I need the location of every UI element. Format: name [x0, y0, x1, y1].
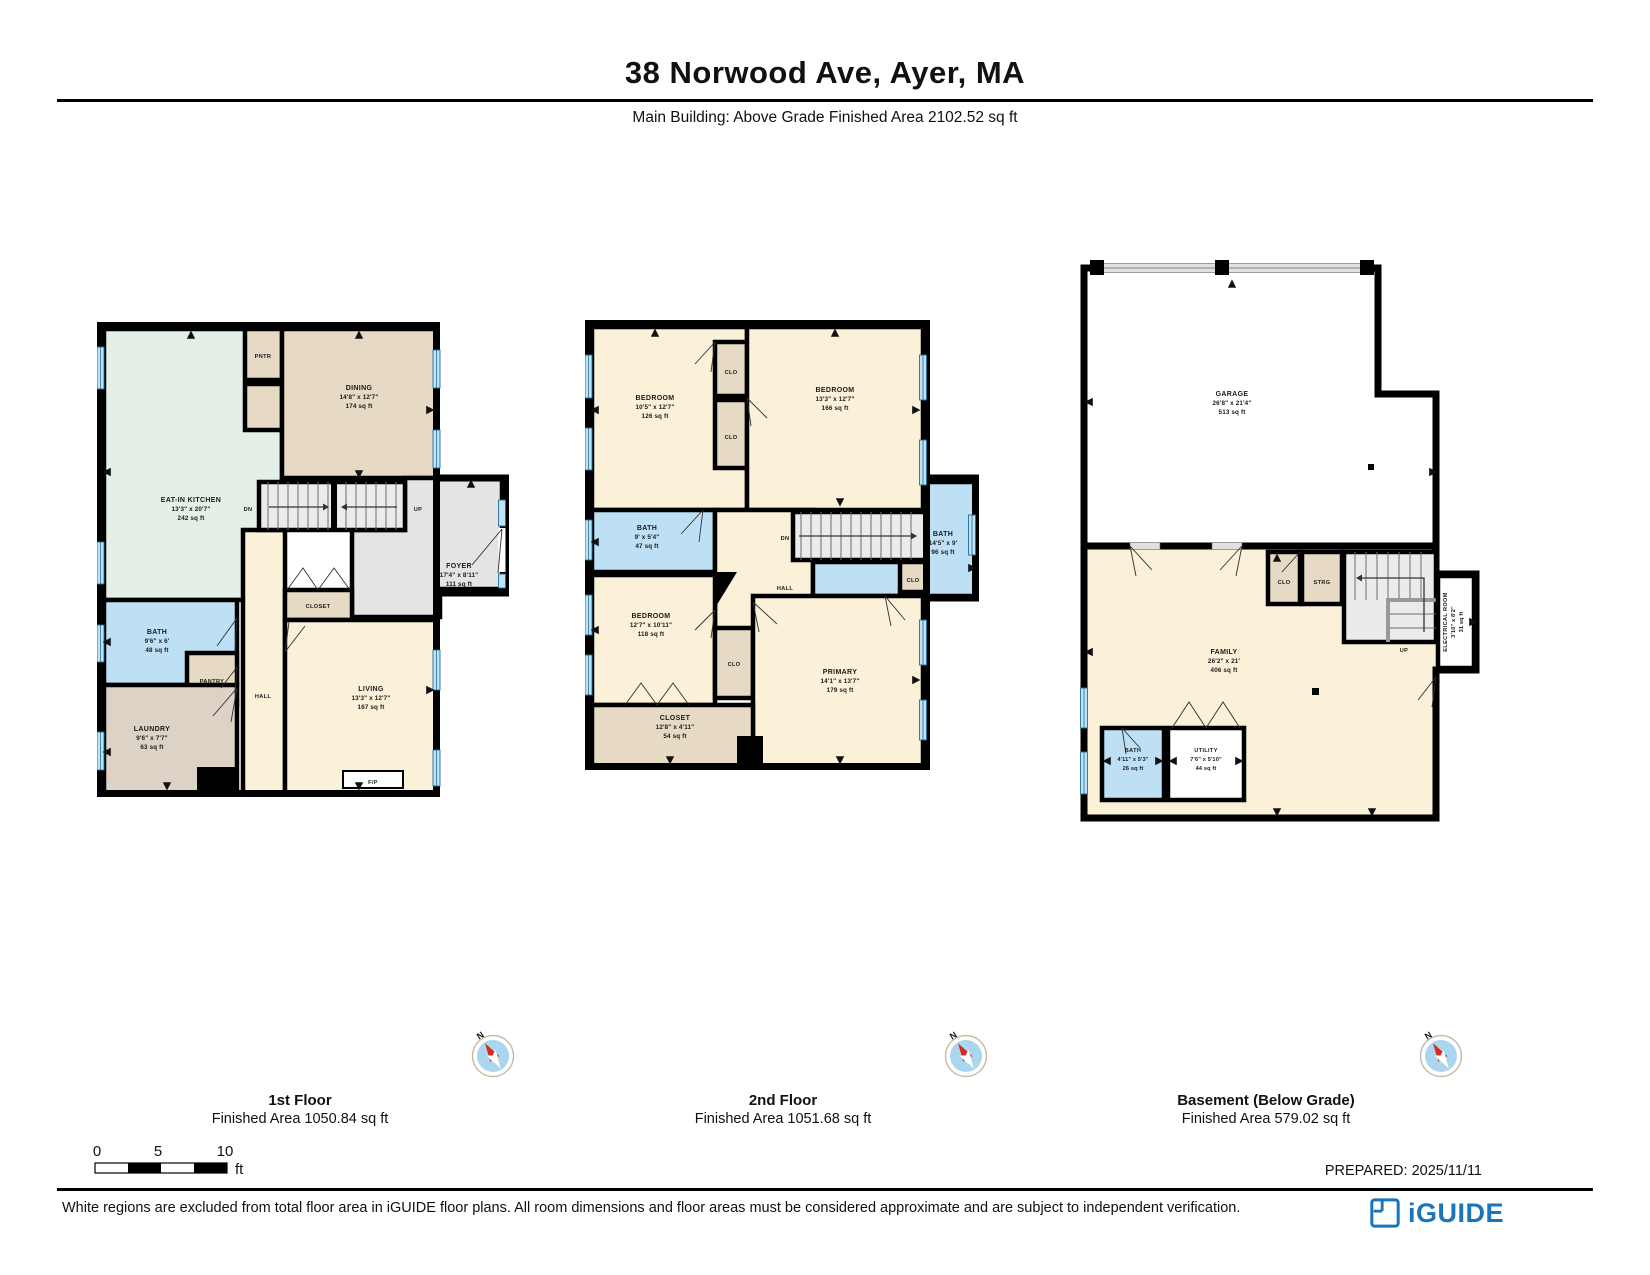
room-label: BATH [637, 525, 657, 532]
room-label: CLO [725, 370, 738, 376]
room-area: 179 sq ft [827, 687, 855, 694]
garage-door-post [1215, 260, 1229, 275]
room-area: 96 sq ft [931, 549, 955, 556]
room-label: BEDROOM [631, 613, 670, 620]
floor-finished-area: Finished Area 1050.84 sq ft [110, 1111, 490, 1127]
room-dims: 10'5" x 12'7" [636, 404, 675, 411]
room-dims: 12'7" x 10'11" [630, 622, 672, 629]
bath-room [1102, 728, 1164, 800]
room-dims: 7'6" x 5'10" [1190, 757, 1222, 763]
floor-name: 2nd Floor [593, 1092, 973, 1109]
stairs-down-label: DN [781, 536, 790, 542]
room-dims: 9'6" x 7'7" [136, 735, 168, 742]
room-area: 166 sq ft [822, 405, 850, 412]
room-label: GARAGE [1216, 391, 1249, 398]
room-dims: 12'8" x 4'11" [656, 724, 695, 731]
room-dims: 4'11" x 5'3" [1117, 757, 1148, 763]
room-label: EAT-IN KITCHEN [161, 497, 221, 504]
wall-notch [737, 736, 763, 766]
room-area: 54 sq ft [663, 733, 687, 740]
iguide-logo-text: iGUIDE [1408, 1198, 1504, 1229]
room-label: LAUNDRY [134, 726, 170, 733]
room-area: 44 sq ft [1196, 766, 1217, 772]
room-area: 118 sq ft [638, 631, 665, 638]
hall-area [243, 530, 285, 793]
room-label: CLOSET [660, 715, 691, 722]
stairs-up-label: UP [1400, 648, 1408, 654]
caption-2nd-floor: 2nd Floor Finished Area 1051.68 sq ft [593, 1092, 973, 1127]
room-area: 126 sq ft [642, 413, 670, 420]
room-label: CLO [907, 578, 920, 584]
room-label: BEDROOM [815, 387, 854, 394]
room-area: 47 sq ft [635, 543, 659, 550]
page-title: 38 Norwood Ave, Ayer, MA [0, 55, 1650, 91]
iguide-logo: iGUIDE [1369, 1197, 1504, 1229]
caption-1st-floor: 1st Floor Finished Area 1050.84 sq ft [110, 1092, 490, 1127]
svg-text:31 sq ft: 31 sq ft [1459, 612, 1465, 633]
room-dims: 13'3" x 20'7" [172, 506, 211, 513]
room-label: PANTRY [200, 679, 224, 685]
garage-area [1084, 268, 1436, 546]
room-dims: 17'4" x 8'11" [440, 572, 479, 579]
room-area: 406 sq ft [1211, 667, 1239, 674]
room-dims: 26'2" x 21' [1208, 658, 1240, 665]
basement-floor-plan: GARAGE 26'8" x 21'4" 513 sq ft FAMILY 26… [1072, 252, 1492, 832]
first-floor-plan: EAT-IN KITCHEN 13'3" x 20'7" 242 sq ft P… [97, 322, 512, 797]
caption-basement: Basement (Below Grade) Finished Area 579… [1076, 1092, 1456, 1127]
scale-unit: ft [235, 1161, 244, 1178]
floor-name: 1st Floor [110, 1092, 490, 1109]
room-label: PRIMARY [823, 669, 857, 676]
room-dims: 9' x 5'4" [635, 534, 660, 541]
clo-stairs [900, 562, 927, 592]
page-subtitle: Main Building: Above Grade Finished Area… [0, 109, 1650, 127]
fireplace-label: F/P [368, 780, 378, 786]
room-label: FAMILY [1210, 649, 1237, 656]
room-label: STRG [1314, 580, 1331, 586]
room-dims: 14'5" x 9' [929, 540, 958, 547]
floor-finished-area: Finished Area 1051.68 sq ft [593, 1111, 973, 1127]
room-label: CLOSET [306, 604, 331, 610]
header-divider [57, 99, 1593, 102]
svg-text:ELECTRICAL ROOM: ELECTRICAL ROOM [1443, 592, 1449, 652]
iguide-logo-icon [1369, 1197, 1401, 1229]
room-dims: 13'3" x 12'7" [816, 396, 855, 403]
room-area: 48 sq ft [145, 647, 169, 654]
room-label: LIVING [358, 686, 384, 693]
garage-door-post [1360, 260, 1374, 275]
bath-west [592, 510, 715, 572]
room-dims: 9'6" x 6' [145, 638, 170, 645]
room-label: HALL [255, 694, 272, 700]
scale-tick-10: 10 [217, 1143, 234, 1160]
room-dims: 13'3" x 12'7" [352, 695, 391, 702]
room-label: PNTR [255, 354, 272, 360]
room-area: 174 sq ft [346, 403, 374, 410]
garage-marker-dot [1368, 464, 1374, 470]
chimney-block [197, 767, 237, 793]
compass-1st-floor: N [465, 1028, 521, 1084]
family-marker-dot [1312, 688, 1319, 695]
prepared-date: PREPARED: 2025/11/11 [1325, 1163, 1482, 1179]
clo-room [1268, 552, 1300, 604]
stairs-up-label: UP [414, 507, 422, 513]
room-area: 167 sq ft [358, 704, 386, 711]
room-dims: 14'8" x 12'7" [340, 394, 379, 401]
second-floor-plan: BEDROOM 10'5" x 12'7" 126 sq ft CLO CLO … [585, 320, 985, 770]
room-area: 513 sq ft [1219, 409, 1247, 416]
scale-tick-5: 5 [154, 1143, 162, 1160]
strg-room [1302, 552, 1342, 604]
compass-basement: N [1413, 1028, 1469, 1084]
room-area: 111 sq ft [446, 581, 473, 588]
pntr-room-2 [245, 384, 282, 430]
room-label: CLO [725, 435, 738, 441]
bedroom-sw [592, 575, 715, 705]
garage-door-post [1090, 260, 1104, 275]
room-label: HALL [777, 586, 794, 592]
clo-lower [715, 400, 747, 468]
footer-divider [57, 1188, 1593, 1191]
room-dims: 26'8" x 21'4" [1213, 400, 1252, 407]
floorplan-page: 38 Norwood Ave, Ayer, MA Main Building: … [0, 0, 1650, 1275]
room-label: BATH [147, 629, 167, 636]
room-area: 63 sq ft [140, 744, 164, 751]
room-label: DINING [346, 385, 373, 392]
room-label: CLO [728, 662, 741, 668]
floor-finished-area: Finished Area 579.02 sq ft [1076, 1111, 1456, 1127]
room-area: 242 sq ft [178, 515, 206, 522]
stairs-down-label: DN [244, 507, 253, 513]
room-label: FOYER [446, 563, 472, 570]
clo-upper [715, 342, 747, 396]
room-label: BATH [1125, 748, 1142, 754]
svg-text:3'10" x 8'2": 3'10" x 8'2" [1451, 606, 1457, 638]
stair-divider [331, 482, 337, 530]
scale-tick-0: 0 [93, 1143, 101, 1160]
footer-disclaimer: White regions are excluded from total fl… [62, 1200, 1240, 1216]
bedroom-ne [747, 327, 923, 510]
utility-room [1168, 728, 1244, 800]
floor-name: Basement (Below Grade) [1076, 1092, 1456, 1109]
scale-bar: 0 5 10 ft [85, 1140, 265, 1182]
room-label: CLO [1278, 580, 1291, 586]
compass-2nd-floor: N [938, 1028, 994, 1084]
room-area: 26 sq ft [1123, 766, 1144, 772]
room-label: UTILITY [1194, 748, 1218, 754]
room-label: BEDROOM [635, 395, 674, 402]
room-dims: 14'1" x 13'7" [821, 678, 860, 685]
room-label: BATH [933, 531, 953, 538]
